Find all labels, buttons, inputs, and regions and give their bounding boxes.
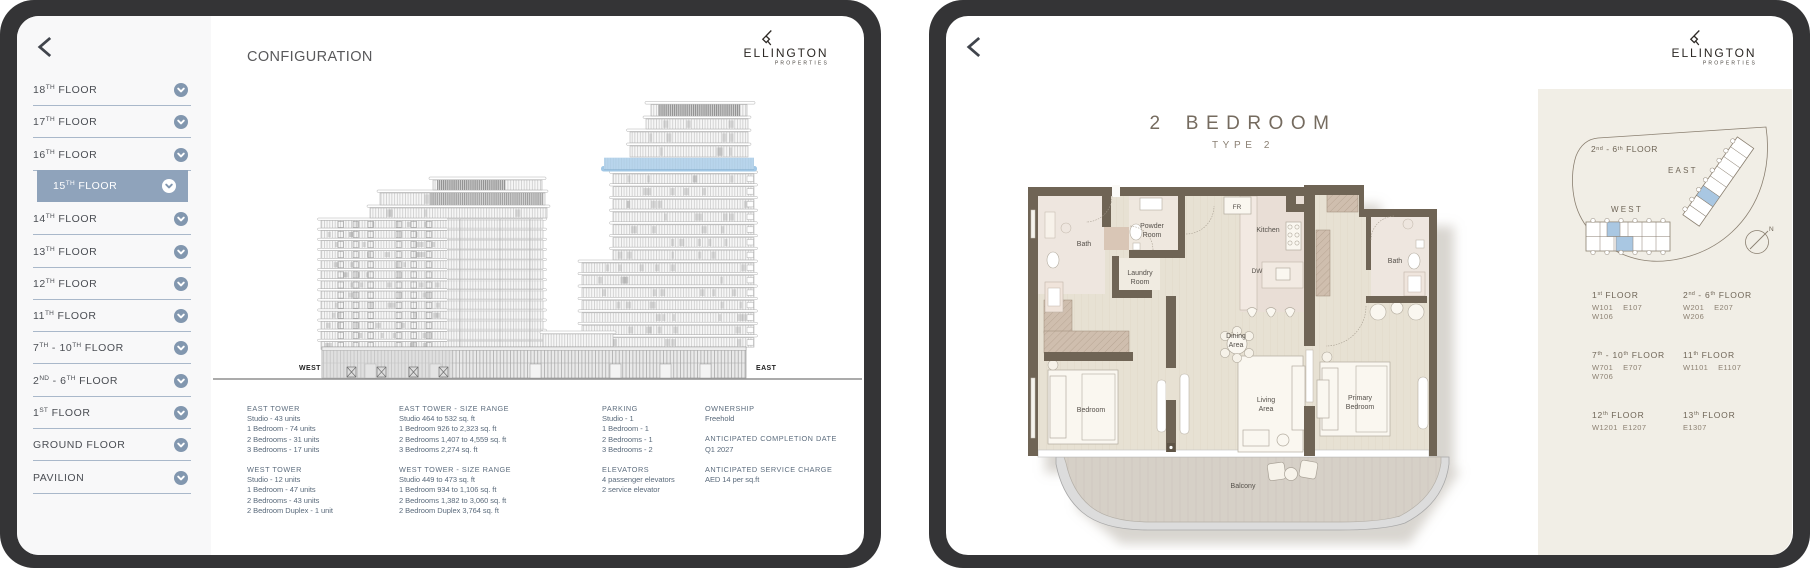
svg-text:Room: Room xyxy=(1143,232,1162,239)
svg-text:EAST: EAST xyxy=(1668,166,1698,175)
svg-text:ELLINGTON: ELLINGTON xyxy=(1672,46,1757,60)
svg-text:DW: DW xyxy=(1252,268,1264,275)
svg-text:WEST: WEST xyxy=(1611,205,1643,214)
svg-text:PROPERTIES: PROPERTIES xyxy=(775,61,829,67)
svg-text:Primary: Primary xyxy=(1348,395,1373,402)
svg-text:Room: Room xyxy=(1131,279,1150,286)
svg-text:Kitchen: Kitchen xyxy=(1256,227,1279,234)
svg-text:Living: Living xyxy=(1257,397,1275,404)
svg-text:Balcony: Balcony xyxy=(1231,483,1256,490)
svg-text:FR: FR xyxy=(1233,204,1242,211)
svg-text:Laundry: Laundry xyxy=(1127,270,1153,277)
svg-text:Area: Area xyxy=(1259,406,1274,413)
svg-text:Area: Area xyxy=(1229,342,1244,349)
svg-text:ELLINGTON: ELLINGTON xyxy=(744,46,829,60)
svg-text:EAST: EAST xyxy=(756,365,777,372)
svg-text:WEST: WEST xyxy=(299,365,321,372)
svg-text:Bedroom: Bedroom xyxy=(1077,407,1106,414)
svg-text:Bath: Bath xyxy=(1077,241,1092,248)
svg-text:Dining: Dining xyxy=(1226,333,1246,340)
svg-text:Bedroom: Bedroom xyxy=(1346,404,1375,411)
svg-text:Bath: Bath xyxy=(1388,258,1403,265)
svg-text:PROPERTIES: PROPERTIES xyxy=(1703,61,1757,67)
svg-text:N: N xyxy=(1769,226,1774,233)
svg-text:Powder: Powder xyxy=(1140,223,1164,230)
svg-text:2nd - 6th FLOOR: 2nd - 6th FLOOR xyxy=(1591,144,1658,154)
